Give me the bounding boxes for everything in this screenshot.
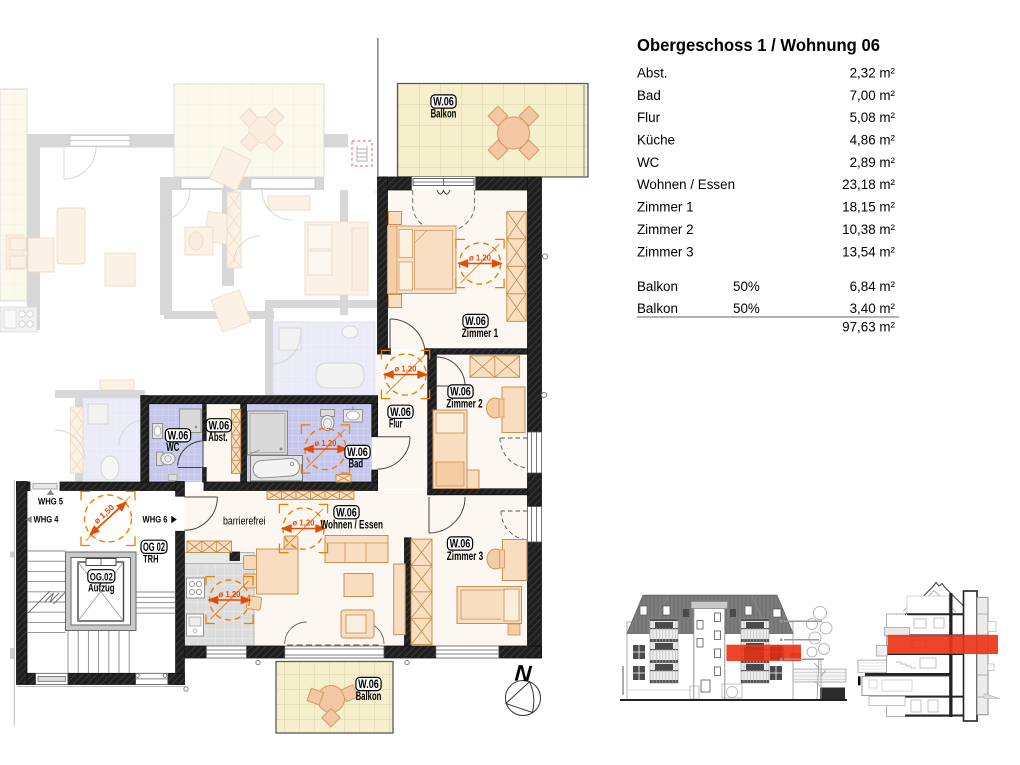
svg-text:Balkon: Balkon <box>637 301 678 316</box>
svg-text:N: N <box>514 660 533 687</box>
svg-text:6,84 m²: 6,84 m² <box>850 279 896 294</box>
svg-text:Zimmer 3: Zimmer 3 <box>447 551 483 563</box>
svg-text:Zimmer 2: Zimmer 2 <box>637 222 694 237</box>
svg-text:Bad: Bad <box>637 88 661 103</box>
svg-text:10,38 m²: 10,38 m² <box>842 222 895 237</box>
svg-text:Balkon: Balkon <box>637 279 678 294</box>
svg-text:W.06: W.06 <box>465 316 486 328</box>
svg-text:Abst.: Abst. <box>208 432 227 444</box>
svg-text:W.06: W.06 <box>336 507 357 519</box>
svg-text:WC: WC <box>166 442 179 454</box>
svg-text:W.06: W.06 <box>450 539 471 551</box>
svg-text:W.06: W.06 <box>450 387 471 399</box>
svg-text:Balkon: Balkon <box>356 691 382 703</box>
svg-text:5,08 m²: 5,08 m² <box>850 110 896 125</box>
svg-text:WHG 4: WHG 4 <box>34 515 60 526</box>
svg-text:Wohnen / Essen: Wohnen / Essen <box>637 177 735 192</box>
svg-text:W.06: W.06 <box>358 679 379 691</box>
svg-text:Abst.: Abst. <box>637 66 668 81</box>
svg-text:Obergeschoss 1 / Wohnung 06: Obergeschoss 1 / Wohnung 06 <box>637 35 880 55</box>
svg-text:Zimmer 2: Zimmer 2 <box>446 398 482 410</box>
svg-text:ø 1,20: ø 1,20 <box>219 589 241 599</box>
svg-text:ø 1,20: ø 1,20 <box>395 364 417 374</box>
svg-text:W.06: W.06 <box>208 420 229 432</box>
svg-text:3,40 m²: 3,40 m² <box>850 301 896 316</box>
svg-text:W.06: W.06 <box>390 407 411 419</box>
svg-text:WC: WC <box>637 155 660 170</box>
svg-text:50%: 50% <box>733 301 760 316</box>
svg-text:Aufzug: Aufzug <box>88 582 115 594</box>
svg-text:Bad: Bad <box>349 459 364 471</box>
svg-text:OG 02: OG 02 <box>143 542 165 554</box>
svg-text:7,00 m²: 7,00 m² <box>850 88 896 103</box>
svg-text:18,15 m²: 18,15 m² <box>842 200 895 215</box>
svg-text:W.06: W.06 <box>347 447 368 459</box>
svg-text:2,89 m²: 2,89 m² <box>850 155 896 170</box>
svg-text:W.06: W.06 <box>433 97 454 109</box>
svg-text:Wohnen / Essen: Wohnen / Essen <box>321 520 383 532</box>
svg-text:Balkon: Balkon <box>431 109 457 121</box>
svg-text:50%: 50% <box>733 279 760 294</box>
svg-text:23,18 m²: 23,18 m² <box>842 177 895 192</box>
svg-text:ø 1,20: ø 1,20 <box>469 253 491 263</box>
svg-text:Zimmer 1: Zimmer 1 <box>637 200 694 215</box>
svg-text:ø 1,20: ø 1,20 <box>315 438 337 448</box>
svg-text:TRH: TRH <box>143 553 158 565</box>
svg-text:Küche: Küche <box>637 133 675 148</box>
svg-text:Flur: Flur <box>389 419 403 431</box>
svg-text:2,32 m²: 2,32 m² <box>850 66 896 81</box>
svg-text:W.06: W.06 <box>168 430 189 442</box>
svg-text:ø 1,20: ø 1,20 <box>293 518 315 528</box>
svg-text:Flur: Flur <box>637 110 661 125</box>
svg-text:97,63 m²: 97,63 m² <box>842 320 895 335</box>
svg-text:Zimmer 3: Zimmer 3 <box>637 244 694 259</box>
svg-text:barrierefrei: barrierefrei <box>223 515 266 527</box>
svg-text:13,54 m²: 13,54 m² <box>842 244 895 259</box>
svg-text:WHG 5: WHG 5 <box>38 496 64 507</box>
svg-text:WHG 6: WHG 6 <box>143 515 168 526</box>
svg-text:4,86 m²: 4,86 m² <box>850 133 896 148</box>
svg-text:Zimmer 1: Zimmer 1 <box>462 328 499 340</box>
